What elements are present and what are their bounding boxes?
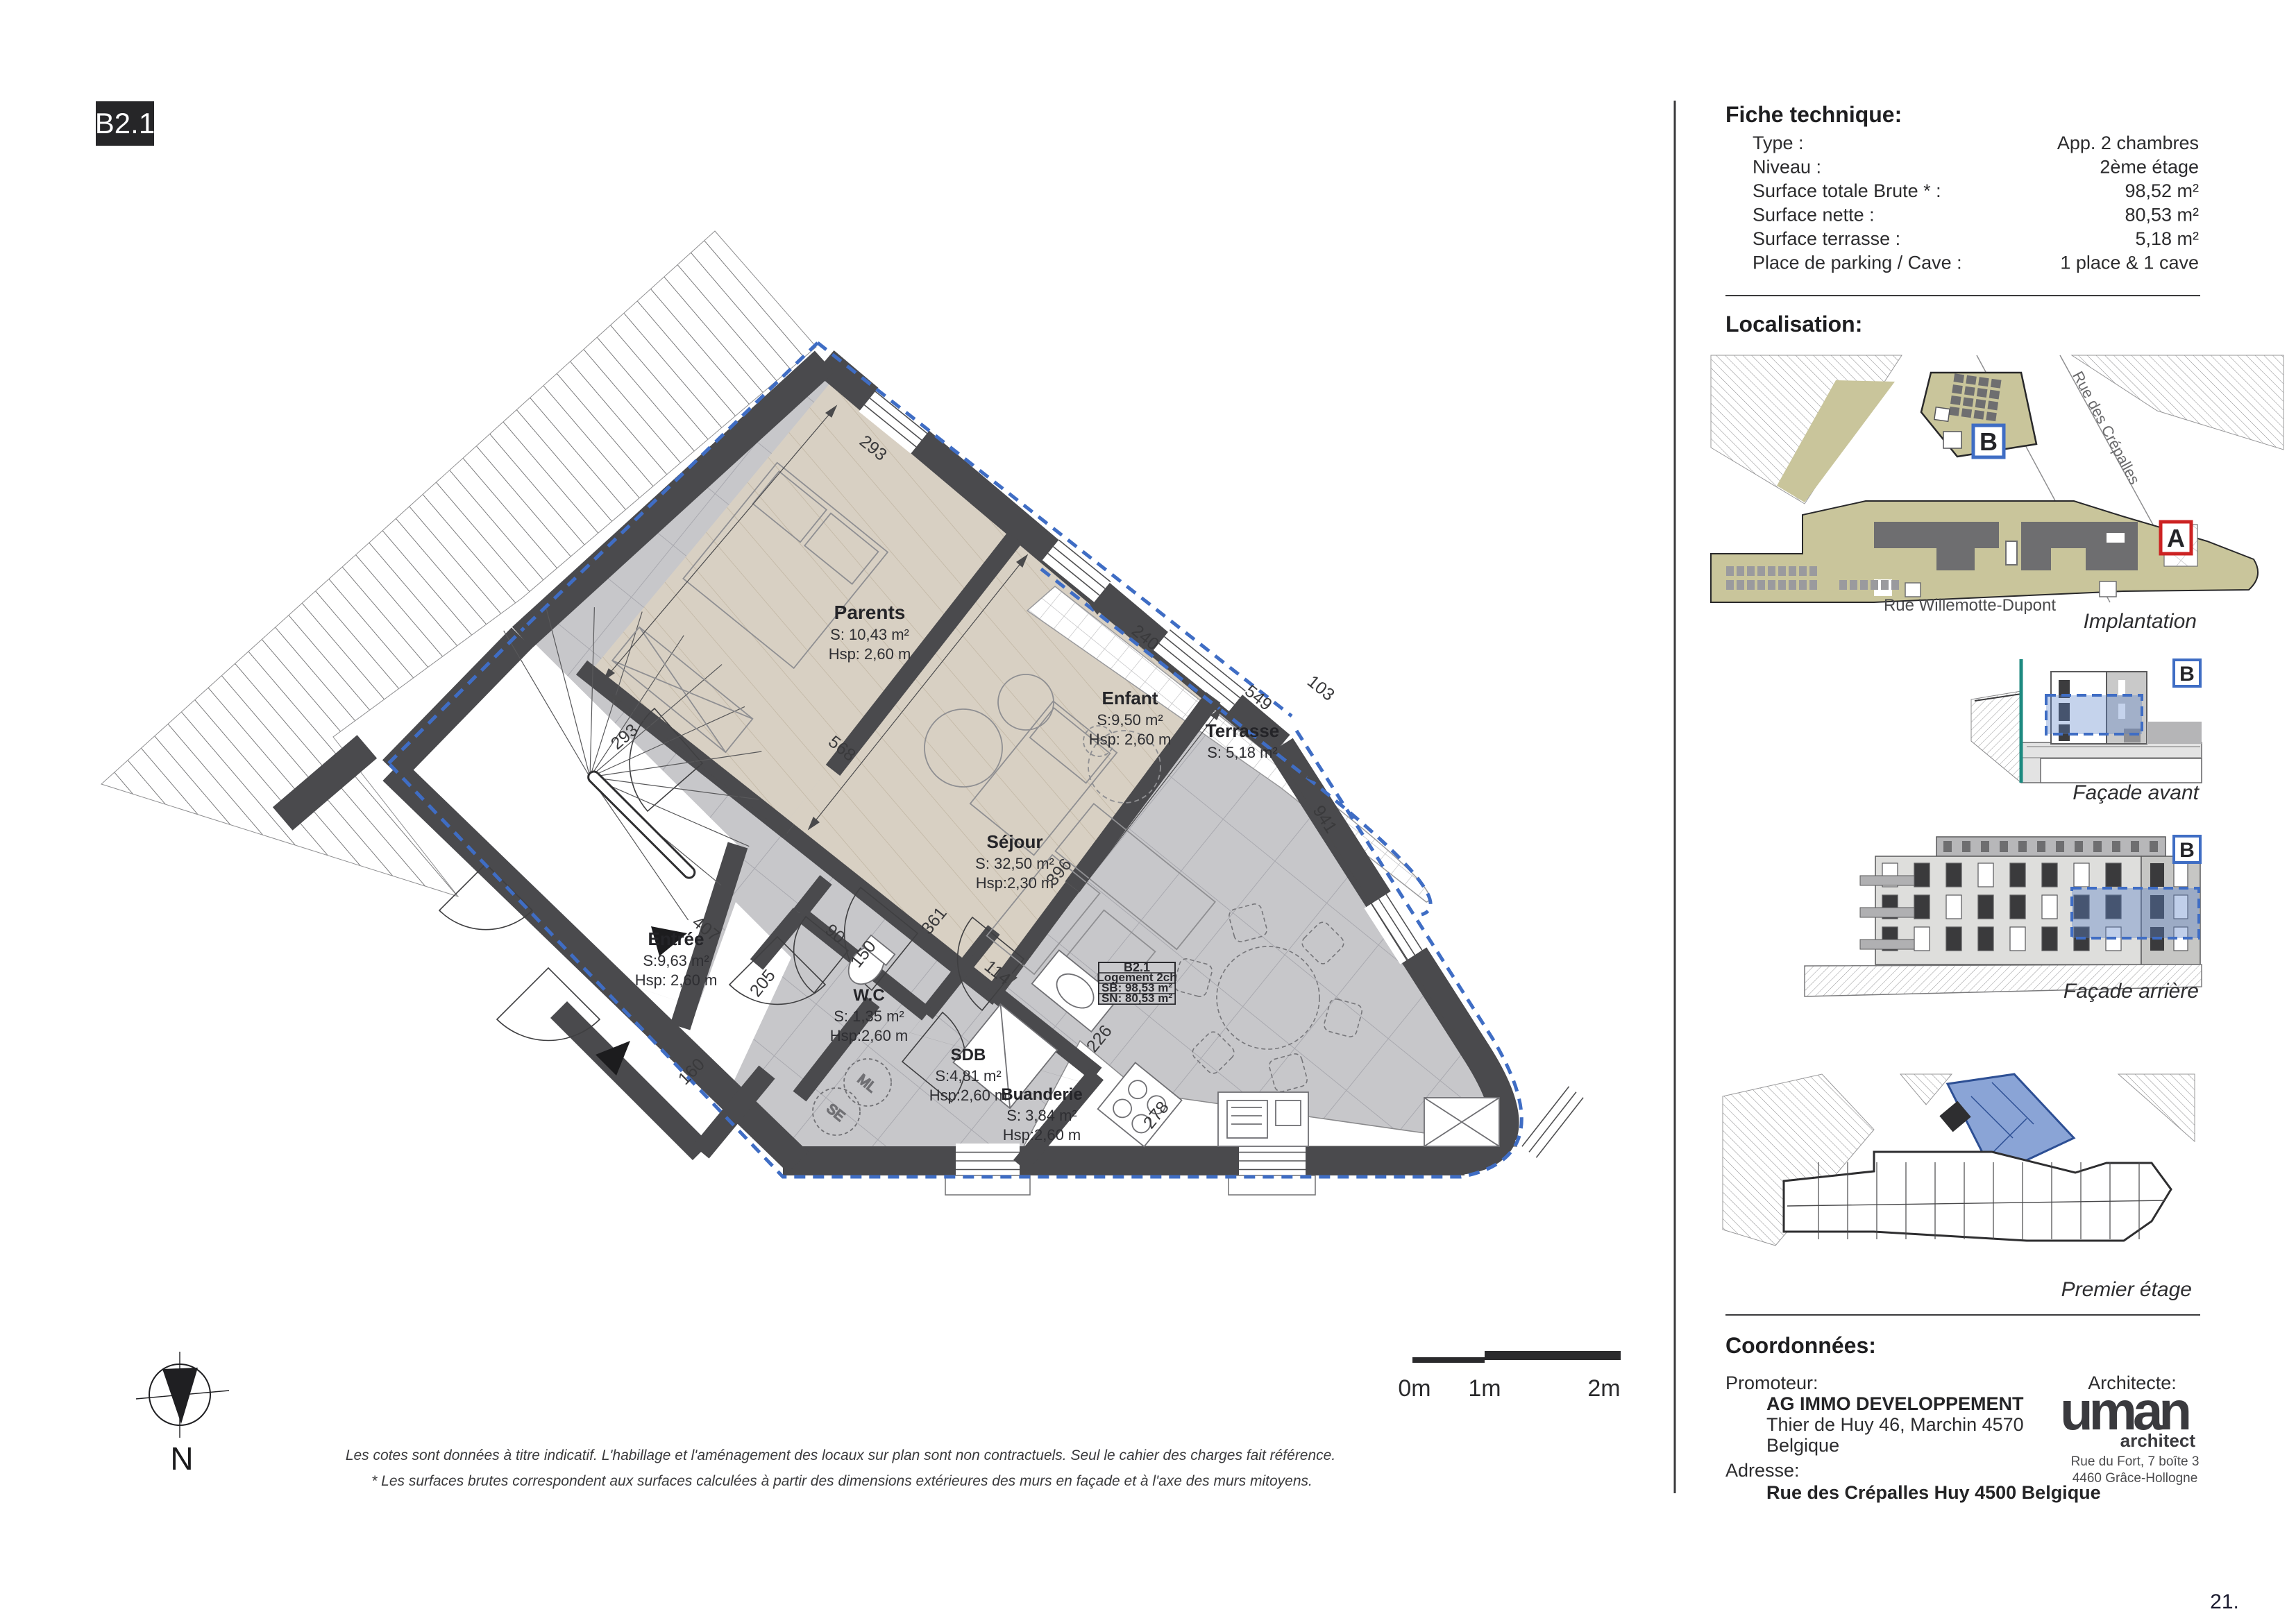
svg-text:B: B [2179, 839, 2195, 862]
svg-text:Rue du Fort, 7 boîte 3: Rue du Fort, 7 boîte 3 [2071, 1454, 2200, 1469]
svg-text:Hsp:2,60 m: Hsp:2,60 m [1003, 1126, 1081, 1144]
svg-text:Entrée: Entrée [648, 928, 704, 949]
svg-text:W.C: W.C [853, 986, 884, 1005]
svg-text:Hsp:2,30 m: Hsp:2,30 m [976, 874, 1054, 892]
svg-text:Niveau :: Niveau : [1753, 157, 1821, 178]
svg-text:Enfant: Enfant [1102, 688, 1158, 708]
svg-text:Place de parking / Cave :: Place de parking / Cave : [1753, 253, 1962, 273]
svg-text:Fiche technique:: Fiche technique: [1725, 102, 1902, 127]
svg-text:Hsp: 2,60 m: Hsp: 2,60 m [635, 971, 718, 989]
svg-text:Surface terrasse :: Surface terrasse : [1753, 228, 1900, 249]
svg-text:architect: architect [2120, 1430, 2196, 1451]
svg-text:Premier étage: Premier étage [2061, 1278, 2192, 1301]
svg-text:80,53 m²: 80,53 m² [2125, 205, 2199, 226]
svg-text:Hsp: 2,60 m: Hsp: 2,60 m [1089, 731, 1172, 748]
svg-text:0m: 0m [1398, 1375, 1430, 1402]
svg-text:1 place & 1 cave: 1 place & 1 cave [2060, 253, 2199, 273]
svg-text:Les cotes sont données à titre: Les cotes sont données à titre indicatif… [346, 1447, 1335, 1463]
svg-text:B: B [2179, 663, 2195, 686]
svg-text:1m: 1m [1468, 1375, 1501, 1402]
svg-text:4460 Grâce-Hollogne: 4460 Grâce-Hollogne [2073, 1471, 2198, 1486]
svg-text:B: B [1980, 427, 1998, 456]
svg-text:SDB: SDB [951, 1046, 986, 1064]
svg-text:N: N [170, 1441, 193, 1477]
svg-text:2ème étage: 2ème étage [2100, 157, 2199, 178]
svg-text:Surface nette :: Surface nette : [1753, 205, 1875, 226]
svg-text:S:4,81 m²: S:4,81 m² [935, 1067, 1001, 1085]
svg-text:S: 5,18 m²: S: 5,18 m² [1207, 744, 1277, 761]
svg-text:Implantation: Implantation [2084, 610, 2197, 633]
svg-text:S: 10,43 m²: S: 10,43 m² [830, 626, 909, 643]
svg-text:S: 1,35 m²: S: 1,35 m² [834, 1008, 904, 1025]
svg-text:Rue des Crépalles Huy 4500 Bel: Rue des Crépalles Huy 4500 Belgique [1766, 1482, 2101, 1503]
svg-text:Façade arrière: Façade arrière [2063, 980, 2199, 1003]
svg-text:98,52 m²: 98,52 m² [2125, 180, 2199, 201]
svg-text:S: 32,50 m²: S: 32,50 m² [975, 855, 1054, 872]
svg-text:Coordonnées:: Coordonnées: [1725, 1333, 1876, 1358]
svg-text:Parents: Parents [834, 602, 906, 623]
svg-text:2m: 2m [1587, 1375, 1620, 1402]
svg-text:Type :: Type : [1753, 133, 1804, 153]
svg-text:Hsp:2,60 m: Hsp:2,60 m [929, 1087, 1008, 1104]
svg-text:* Les surfaces brutes correspo: * Les surfaces brutes correspondent aux … [371, 1473, 1312, 1489]
svg-text:Surface totale Brute * :: Surface totale Brute * : [1753, 180, 1941, 201]
svg-text:AG IMMO DEVELOPPEMENT: AG IMMO DEVELOPPEMENT [1766, 1393, 2024, 1414]
svg-text:S: 3,84 m²: S: 3,84 m² [1006, 1107, 1077, 1124]
svg-text:Hsp: 2,60 m: Hsp: 2,60 m [829, 645, 911, 663]
svg-text:21.: 21. [2210, 1590, 2239, 1613]
svg-text:B2.1: B2.1 [95, 107, 155, 139]
svg-text:Localisation:: Localisation: [1725, 312, 1862, 337]
svg-text:Hsp:2,60 m: Hsp:2,60 m [830, 1027, 909, 1044]
svg-text:Belgique: Belgique [1766, 1435, 1839, 1456]
svg-text:S:9,63 m²: S:9,63 m² [643, 952, 709, 969]
svg-text:Buanderie: Buanderie [1001, 1085, 1082, 1104]
svg-text:Adresse:: Adresse: [1725, 1460, 1800, 1481]
svg-text:Séjour: Séjour [987, 831, 1043, 852]
svg-text:Façade avant: Façade avant [2073, 781, 2200, 804]
svg-text:Promoteur:: Promoteur: [1725, 1373, 1818, 1393]
svg-text:Terrasse: Terrasse [1206, 720, 1280, 741]
svg-text:5,18 m²: 5,18 m² [2135, 228, 2199, 249]
svg-text:A: A [2167, 524, 2185, 552]
svg-text:SN: 80,53 m²: SN: 80,53 m² [1101, 992, 1172, 1005]
svg-text:App. 2 chambres: App. 2 chambres [2057, 133, 2199, 153]
svg-text:Thier de Huy 46, Marchin 4570: Thier de Huy 46, Marchin 4570 [1766, 1414, 2024, 1435]
svg-text:S:9,50 m²: S:9,50 m² [1097, 711, 1163, 729]
svg-text:Rue Willemotte-Dupont: Rue Willemotte-Dupont [1884, 596, 2056, 615]
